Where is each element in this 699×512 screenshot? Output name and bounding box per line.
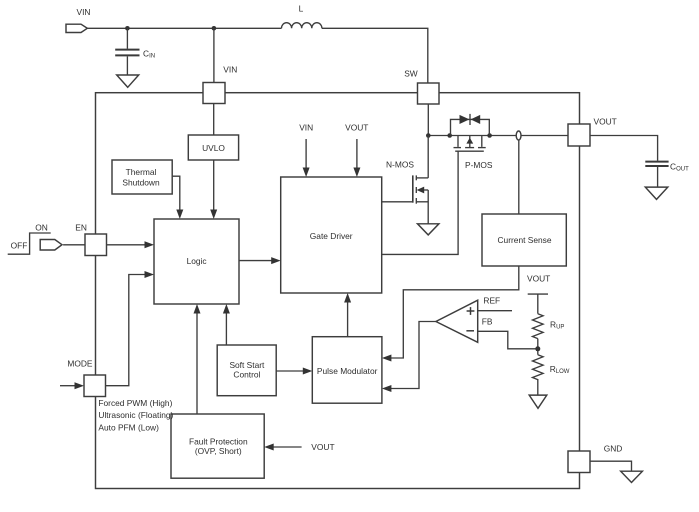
svg-text:VOUT: VOUT [311, 442, 334, 452]
svg-text:MODE: MODE [67, 359, 93, 369]
svg-text:Gate Driver: Gate Driver [310, 231, 353, 241]
svg-text:FB: FB [482, 316, 493, 326]
svg-text:Fault Protection: Fault Protection [189, 436, 248, 446]
svg-text:VOUT: VOUT [594, 116, 617, 126]
svg-text:Soft Start: Soft Start [229, 360, 265, 370]
svg-text:Shutdown: Shutdown [122, 177, 160, 187]
svg-text:Ultrasonic (Floating): Ultrasonic (Floating) [98, 410, 173, 420]
svg-text:Logic: Logic [187, 256, 207, 266]
svg-text:REF: REF [483, 296, 500, 306]
svg-text:OFF: OFF [11, 241, 28, 251]
svg-text:VOUT: VOUT [345, 123, 368, 133]
svg-text:Forced PWM (High): Forced PWM (High) [98, 398, 172, 408]
svg-text:(OVP, Short): (OVP, Short) [195, 446, 242, 456]
svg-text:Current Sense: Current Sense [498, 235, 552, 245]
svg-text:ON: ON [35, 222, 48, 232]
svg-text:P-MOS: P-MOS [465, 160, 493, 170]
svg-text:N-MOS: N-MOS [386, 160, 414, 170]
svg-text:Pulse Modulator: Pulse Modulator [317, 366, 378, 376]
svg-text:SW: SW [404, 69, 418, 79]
svg-text:Control: Control [233, 370, 260, 380]
svg-text:Thermal: Thermal [126, 167, 157, 177]
svg-text:EN: EN [75, 222, 87, 232]
svg-text:VIN: VIN [223, 64, 237, 74]
svg-text:GND: GND [604, 444, 623, 454]
svg-text:VIN: VIN [299, 123, 313, 133]
svg-text:VIN: VIN [77, 7, 91, 17]
svg-text:Auto PFM (Low): Auto PFM (Low) [98, 423, 159, 433]
svg-text:VOUT: VOUT [527, 274, 550, 284]
svg-text:UVLO: UVLO [202, 143, 225, 153]
svg-text:L: L [299, 4, 304, 14]
